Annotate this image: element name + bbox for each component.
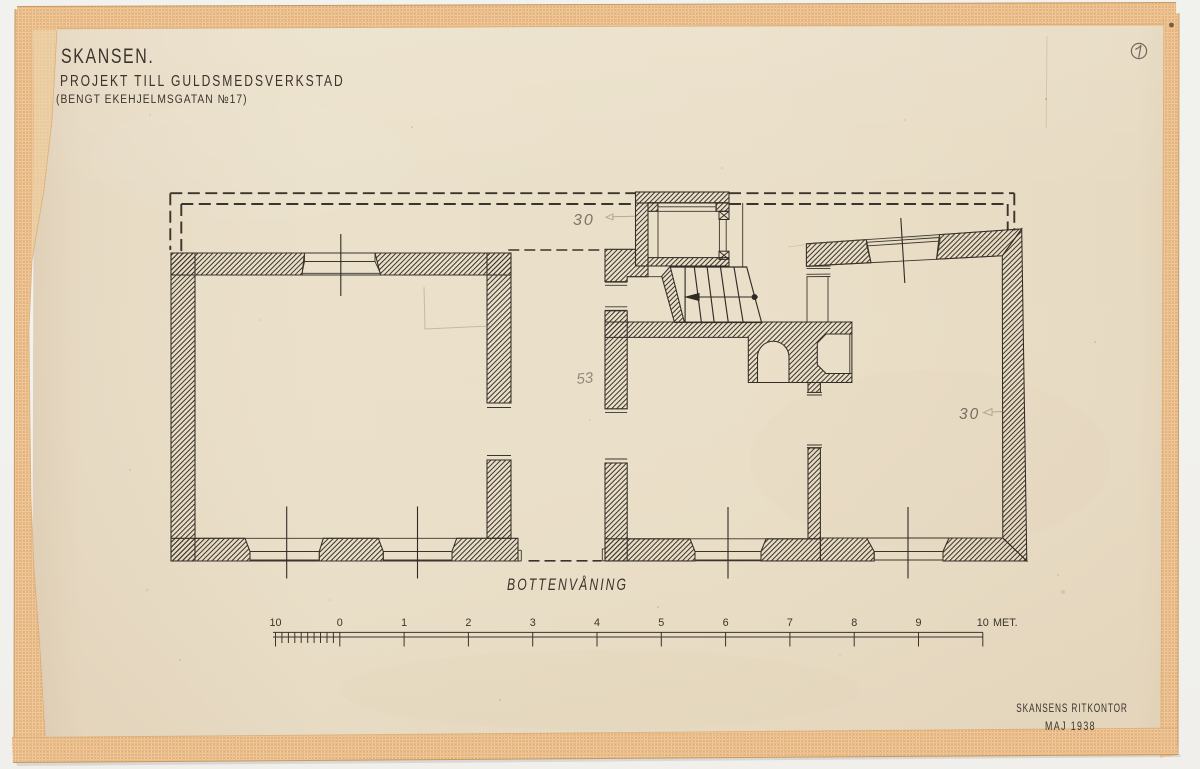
- svg-text:SKANSENS RITKONTOR: SKANSENS RITKONTOR: [1016, 703, 1128, 716]
- svg-text:1: 1: [401, 617, 407, 629]
- svg-text:10: 10: [269, 617, 281, 629]
- svg-text:53: 53: [576, 369, 595, 388]
- svg-text:PROJEKT TILL GULDSMEDSVERKSTAD: PROJEKT TILL GULDSMEDSVERKSTAD: [60, 72, 345, 90]
- svg-text:6: 6: [723, 617, 729, 629]
- svg-text:SKANSEN.: SKANSEN.: [61, 45, 154, 69]
- svg-text:9: 9: [915, 617, 921, 629]
- svg-text:30: 30: [573, 212, 595, 229]
- svg-text:3: 3: [530, 617, 536, 629]
- svg-text:MET.: MET.: [993, 617, 1018, 629]
- svg-text:2: 2: [465, 617, 471, 629]
- svg-text:MAJ 1938: MAJ 1938: [1045, 721, 1096, 733]
- svg-text:5: 5: [658, 617, 664, 629]
- svg-text:(BENGT EKEHJELMSGATAN №17): (BENGT EKEHJELMSGATAN №17): [56, 93, 248, 106]
- svg-text:10: 10: [977, 617, 989, 629]
- svg-text:7: 7: [787, 617, 793, 629]
- svg-text:30: 30: [959, 406, 980, 423]
- svg-text:4: 4: [594, 617, 600, 629]
- svg-text:8: 8: [851, 617, 857, 629]
- svg-text:BOTTENVÅNING: BOTTENVÅNING: [507, 575, 628, 594]
- svg-text:0: 0: [337, 617, 343, 629]
